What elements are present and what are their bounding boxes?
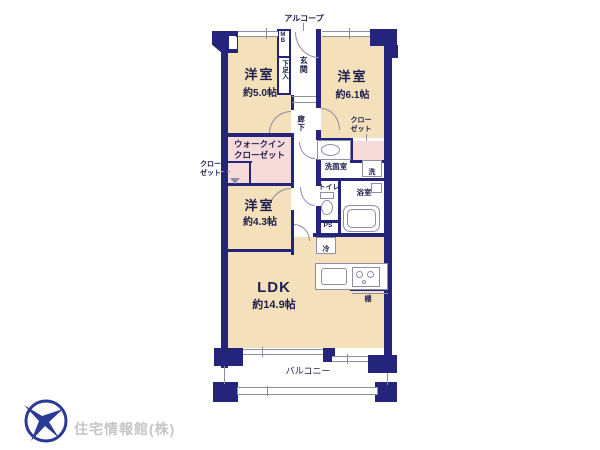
shelf-line [352, 293, 388, 294]
meter-box-label: MB [279, 32, 286, 44]
bedroom1-name: 洋室 [228, 68, 291, 83]
balcony-label: バルコニー [280, 366, 336, 376]
balcony-railing [237, 387, 378, 395]
toilet-label: トイレ [316, 184, 342, 192]
wall-segment [228, 133, 294, 137]
wall-segment [368, 355, 397, 373]
bedroom2-size: 約6.1帖 [319, 90, 386, 102]
bathtub-inner-icon [347, 209, 376, 228]
closet-right-label-line1: クロー [347, 117, 375, 125]
entrance-step-line [292, 102, 316, 103]
wall-segment [214, 348, 243, 366]
closet-left-pointer [221, 171, 230, 172]
balcony-side-line [387, 373, 388, 385]
company-name: 住宅情報館(株) [74, 419, 175, 439]
washroom-door-arc [299, 142, 315, 159]
bathroom-label: 浴室 [346, 189, 382, 198]
railing-tick [267, 386, 268, 396]
wic-opening-marker [230, 178, 240, 184]
window [332, 356, 368, 362]
bedroom3-size: 約4.3帖 [226, 217, 294, 229]
ldk-name: LDK [234, 279, 314, 296]
alcove-pointer [303, 23, 304, 31]
laundry-pan: 洗 [362, 160, 382, 177]
alcove-label: アルコープ [282, 14, 326, 23]
window-tick [347, 354, 348, 364]
wall-segment [291, 133, 294, 188]
bedroom1-size: 約5.0帖 [224, 88, 296, 100]
laundry-label: 洗 [369, 169, 376, 176]
window [243, 349, 323, 355]
bedroom2-closet [353, 141, 384, 160]
closet-right-pointer [366, 134, 367, 141]
wall-segment [228, 249, 294, 252]
washbasin-sink-icon [321, 144, 340, 156]
stove-burner-icon [362, 280, 366, 284]
hallway-label: 廊下 [296, 115, 305, 132]
entrance-door-arc [295, 32, 319, 58]
floorplan-image: 洗 冷 アルコープ MB 下足入 玄関 廊下 洋室 約5.0帖 洋室 約6.1帖… [0, 0, 600, 450]
wall-segment [316, 178, 385, 181]
window-notch [229, 36, 237, 49]
wall-segment [249, 161, 251, 185]
pipe-space-label: PS [317, 222, 339, 229]
wall-segment [370, 29, 397, 46]
window-tick [349, 28, 350, 39]
refrigerator-label: 冷 [323, 246, 330, 253]
wall-segment [385, 45, 398, 58]
refrigerator-space: 冷 [316, 237, 336, 254]
stove-burner-icon [356, 271, 363, 278]
company-logo-bird-icon [22, 396, 70, 444]
shelf-label: 棚 [358, 296, 378, 304]
bedroom2-name: 洋室 [321, 70, 384, 85]
window [322, 31, 370, 37]
balcony-side-line [224, 366, 225, 384]
entrance-label: 玄関 [299, 56, 308, 74]
window-tick [266, 28, 267, 39]
ldk-size: 約14.9帖 [234, 299, 314, 312]
window-tick [262, 347, 263, 357]
closet-right-label-line2: ゼット [347, 126, 375, 134]
kitchen-sink-icon [321, 268, 347, 285]
toilet-tank-icon [320, 192, 334, 199]
toilet-door-arc [300, 187, 315, 206]
closet-left-label-line1: クロー [191, 161, 221, 169]
balcony-pillar [213, 382, 238, 402]
closet-left-label-line2: ゼット [191, 170, 221, 178]
wic-label-line1: ウォークイン [228, 140, 291, 150]
washroom-label: 洗面室 [316, 163, 356, 172]
stove-burner-icon [367, 271, 374, 278]
balcony-pillar [375, 382, 397, 402]
wic-label-line2: クローゼット [228, 151, 291, 161]
bedroom3-name: 洋室 [228, 199, 291, 214]
window [238, 31, 278, 37]
toilet-bowl-icon [321, 200, 333, 215]
ldk-door-arc [294, 224, 310, 241]
